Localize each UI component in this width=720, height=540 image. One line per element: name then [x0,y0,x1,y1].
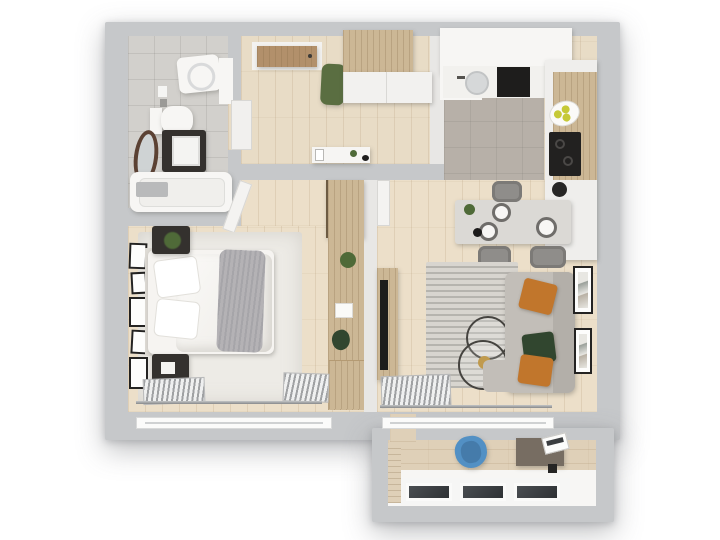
sofa-chaise [483,360,509,392]
desk-accessory [548,464,557,473]
bathroom-shelf [219,58,233,104]
floor-plan-canvas [0,0,720,540]
kettle [552,182,567,197]
washer-drum [186,61,217,92]
nightstand [152,226,190,254]
console-table [312,147,370,163]
dining-chair [530,246,566,268]
kitchen-sink [465,71,489,95]
small-plant [350,150,357,157]
radiator-rail [380,405,552,408]
drawer-unit [329,360,364,409]
photo [161,362,175,374]
laptop-screen [546,437,564,446]
key-dish [362,155,369,161]
washing-machine [176,54,222,94]
radiator [380,374,451,408]
wall-accessory [160,99,167,107]
plate [536,217,557,238]
wall-bedroom-living-divider [364,180,377,412]
plate [492,203,511,222]
balcony-window-pane [514,483,560,501]
hallway-cabinet [343,72,432,103]
orange-pillow [517,354,554,387]
hallway-wardrobe [343,30,413,72]
sink-vanity [162,130,206,172]
balcony-window-pane [460,483,506,501]
balcony-window-pane [406,483,452,501]
desk-plant [340,252,356,268]
frame-art [579,334,587,368]
cabinet-divider [386,72,387,103]
door-handle [308,54,312,58]
burner [555,139,565,149]
tv [380,280,388,370]
bedroom-window [136,417,332,429]
window-glass [145,422,323,424]
oven [497,67,530,97]
radiator-rail [136,401,322,404]
bed-pillow [153,298,201,340]
black-bowl [473,228,482,237]
bathroom-door-leaf [231,100,252,150]
balcony-side-panel [388,443,401,503]
toilet-paper-holder [158,86,167,97]
chair-seat [459,439,483,464]
wall-frame [573,266,593,314]
wall-bathroom-right [228,150,241,164]
wall-frame [574,328,592,374]
kitchen-faucet [457,76,465,79]
living-room-door-leaf [377,180,390,226]
balcony-window-band [398,478,570,505]
cooktop [549,132,581,176]
table-plant [464,204,475,215]
radiator [283,372,330,403]
potted-plant [164,232,181,249]
bath-screen [136,182,168,197]
sink-basin [172,136,200,166]
built-in-wardrobe [326,180,364,238]
entrance-door [257,46,317,67]
window-glass [390,422,546,424]
photo-frame [315,149,324,161]
frame-art [578,272,588,308]
bed-pillow [153,255,202,299]
desk-papers [335,303,353,318]
living-room-window [382,417,554,429]
gray-throw-blanket [216,249,266,353]
burner [563,156,573,166]
fruit [561,112,571,122]
wall-corridor [228,164,438,180]
dining-chair [492,181,522,202]
